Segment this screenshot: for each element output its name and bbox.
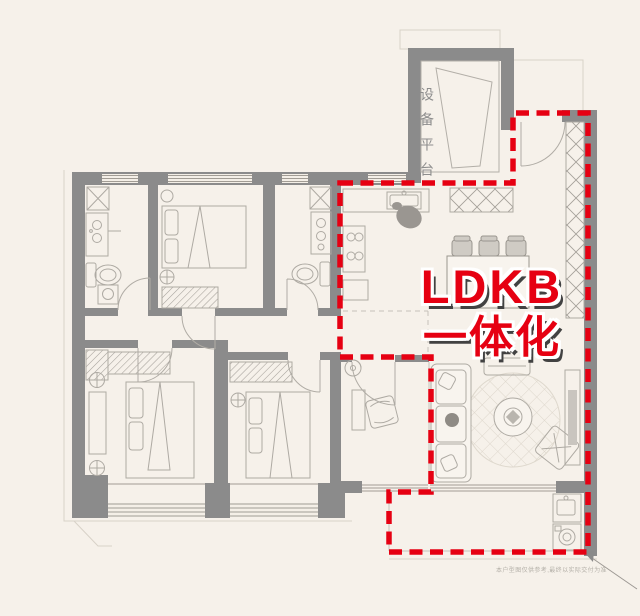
highlight-text-line1: LDKB [406,263,578,310]
balcony [389,493,584,551]
stove-icon [343,226,365,272]
equipment-platform-label: 设备平台 [417,87,437,187]
nightstand-icon [161,190,173,202]
bedroom-bottom-middle [230,362,310,478]
study [345,360,429,481]
bed-icon [246,392,310,478]
entry-cabinet-icon [450,188,513,212]
bed-icon [126,382,194,478]
living-room [431,358,580,482]
nightstand-icon [231,393,245,407]
side-cabinet-icon [89,392,106,454]
shower-icon [310,187,331,209]
bed-icon [162,206,246,268]
bathroom-1 [86,187,121,304]
shower-icon [87,187,109,210]
wardrobe-hatch-icon [230,362,292,382]
vanity-sink-icon [311,212,331,254]
floorplan-image: 设备平台 LDKB 一体化 本户型图仅供参考,最终以实际交付为准 [0,0,640,616]
nightstand-icon [90,461,105,477]
entry-door-arc-icon [521,122,565,166]
vanity-sink-icon [86,213,121,256]
tv-console-icon [565,370,580,465]
lounge-chair-icon [365,395,399,429]
counter-icon [343,280,368,300]
highlight-text-line2: 一体化 [402,316,582,360]
coffee-table-icon [494,398,532,436]
nightstand-icon [160,270,174,284]
dining-chair-icon [479,236,499,256]
laundry-sink-icon [553,494,581,522]
bathroom-2 [292,187,331,286]
nightstand-icon [90,373,105,389]
toilet-icon [292,262,330,286]
bedroom-top [160,190,246,308]
disclaimer-text: 本户型图仅供参考,最终以实际交付为准 [496,565,586,574]
mop-basin-icon [98,285,118,304]
wardrobe-hatch-icon [108,352,170,374]
plant-icon [392,202,425,233]
side-table-icon [352,390,365,430]
toilet-icon [86,263,121,287]
bedroom-bottom-left [86,350,194,478]
dining-chair-icon [506,236,526,256]
wardrobe-hatch-icon [162,287,218,308]
side-table-icon [445,413,459,427]
dining-chair-icon [452,236,472,256]
washing-machine-icon [553,524,581,550]
